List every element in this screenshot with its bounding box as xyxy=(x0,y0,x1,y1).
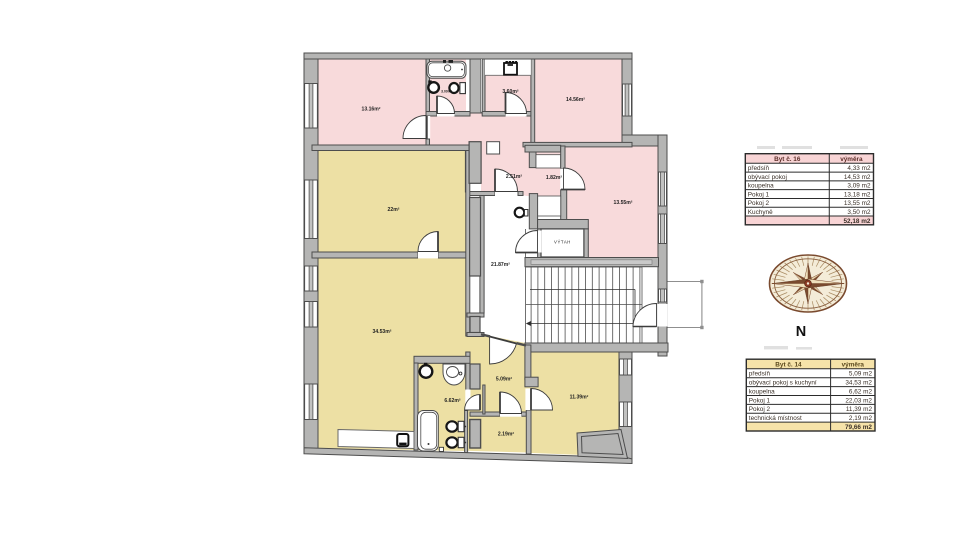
svg-text:výměra: výměra xyxy=(840,156,863,163)
svg-text:3,09 m2: 3,09 m2 xyxy=(847,183,871,190)
svg-text:3,50 m2: 3,50 m2 xyxy=(847,209,871,216)
svg-text:2.51m²: 2.51m² xyxy=(506,174,522,180)
svg-text:6.62m²: 6.62m² xyxy=(444,398,460,404)
svg-text:výměra: výměra xyxy=(842,361,865,368)
svg-text:Pokoj 2: Pokoj 2 xyxy=(749,406,771,413)
svg-text:technická místnost: technická místnost xyxy=(749,415,802,422)
svg-text:koupelna: koupelna xyxy=(748,183,774,190)
svg-text:Pokoj 1: Pokoj 1 xyxy=(749,397,771,404)
svg-text:N: N xyxy=(796,324,806,340)
svg-text:13,55 m2: 13,55 m2 xyxy=(844,200,871,207)
svg-text:Kuchyně: Kuchyně xyxy=(748,209,773,216)
svg-text:obývací pokoj: obývací pokoj xyxy=(748,174,787,181)
svg-text:VÝTAH: VÝTAH xyxy=(554,240,571,245)
svg-text:21.87m²: 21.87m² xyxy=(491,262,510,268)
svg-text:2.19m²: 2.19m² xyxy=(498,432,514,438)
svg-text:52,18 m2: 52,18 m2 xyxy=(843,218,870,225)
svg-text:4,33 m2: 4,33 m2 xyxy=(847,165,871,172)
svg-text:5.09m²: 5.09m² xyxy=(496,377,512,383)
svg-text:22,03 m2: 22,03 m2 xyxy=(845,397,872,404)
svg-text:Byt č. 14: Byt č. 14 xyxy=(775,361,802,368)
svg-text:79,66 m2: 79,66 m2 xyxy=(845,424,872,431)
svg-text:34.53m²: 34.53m² xyxy=(373,329,392,335)
svg-text:Pokoj 2: Pokoj 2 xyxy=(748,200,770,207)
svg-text:34,53 m2: 34,53 m2 xyxy=(845,379,872,386)
svg-text:6,62 m2: 6,62 m2 xyxy=(849,388,873,395)
svg-text:13.16m²: 13.16m² xyxy=(362,106,381,112)
svg-text:11,39 m2: 11,39 m2 xyxy=(846,406,873,413)
svg-text:koupelna: koupelna xyxy=(749,388,775,395)
svg-text:3.60m²: 3.60m² xyxy=(502,89,518,95)
svg-text:13.55m²: 13.55m² xyxy=(614,200,633,206)
svg-text:14.56m²: 14.56m² xyxy=(566,97,585,103)
svg-text:předsíň: předsíň xyxy=(748,165,770,172)
svg-text:14,53 m2: 14,53 m2 xyxy=(844,174,871,181)
svg-text:1.82m²: 1.82m² xyxy=(546,175,562,181)
svg-text:Byt č. 16: Byt č. 16 xyxy=(774,156,801,163)
svg-text:2,19 m2: 2,19 m2 xyxy=(849,415,873,422)
svg-text:obývací pokoj s kuchyní: obývací pokoj s kuchyní xyxy=(749,379,817,386)
svg-text:11.39m²: 11.39m² xyxy=(570,395,589,401)
svg-text:3.09m²: 3.09m² xyxy=(441,90,453,94)
svg-text:22m²: 22m² xyxy=(388,207,400,213)
svg-text:Pokoj 1: Pokoj 1 xyxy=(748,191,770,198)
svg-text:předsíň: předsíň xyxy=(749,371,771,378)
svg-text:5,09 m2: 5,09 m2 xyxy=(849,371,873,378)
svg-text:13,18 m2: 13,18 m2 xyxy=(844,191,871,198)
